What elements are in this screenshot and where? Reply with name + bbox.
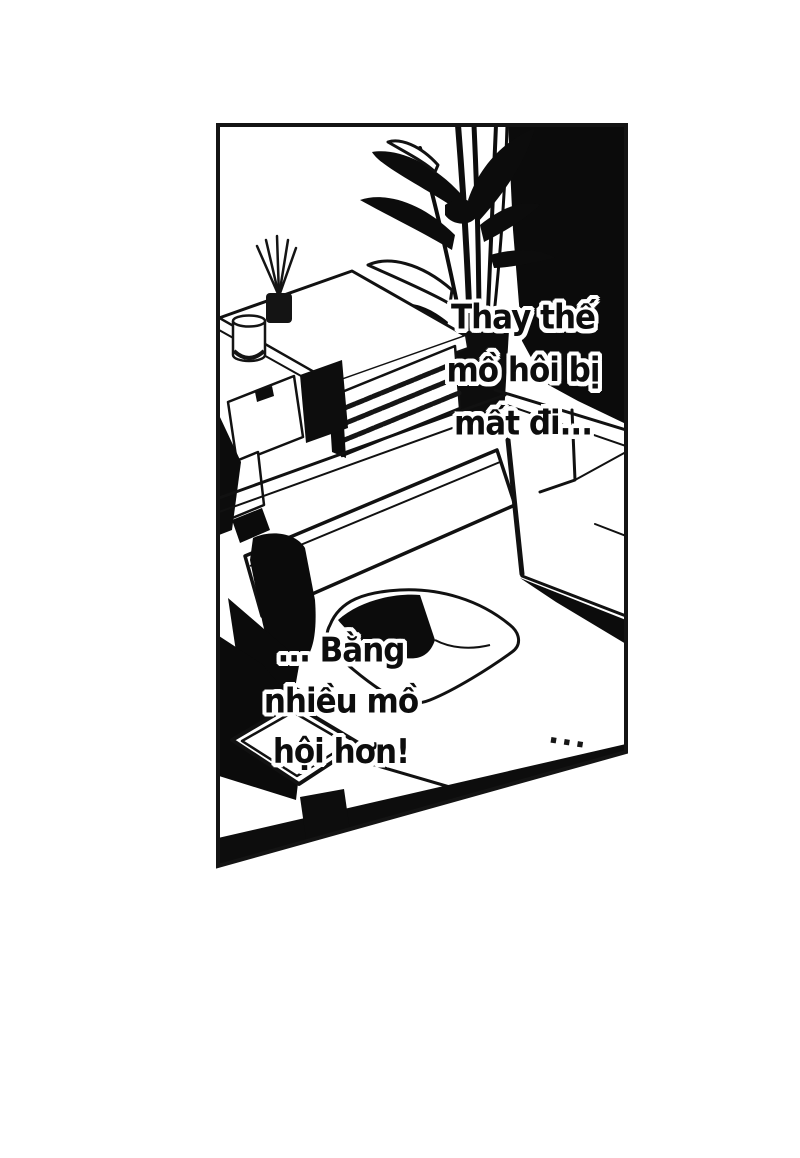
dialogue-caption-bottom-left: ... Bằng nhiều mồ hội hơn! xyxy=(225,626,457,778)
caption-line: nhiều mồ xyxy=(225,677,457,728)
caption-line: ... Bằng xyxy=(225,626,457,677)
caption-line: hội hơn! xyxy=(225,728,457,779)
caption-line: mất đi... xyxy=(398,398,648,451)
manga-panel: ... xyxy=(0,0,800,1158)
ellipsis-marks: ... xyxy=(546,715,591,756)
dialogue-caption-top-right: Thay thế mồ hôi bị mất đi... xyxy=(398,292,648,451)
caption-line: Thay thế xyxy=(398,292,648,345)
manga-page: ... Thay thế mồ hôi bị mất đi... ... Bằn… xyxy=(0,0,800,1158)
caption-line: mồ hôi bị xyxy=(398,345,648,398)
canister xyxy=(233,316,265,362)
storage-box xyxy=(300,360,348,443)
